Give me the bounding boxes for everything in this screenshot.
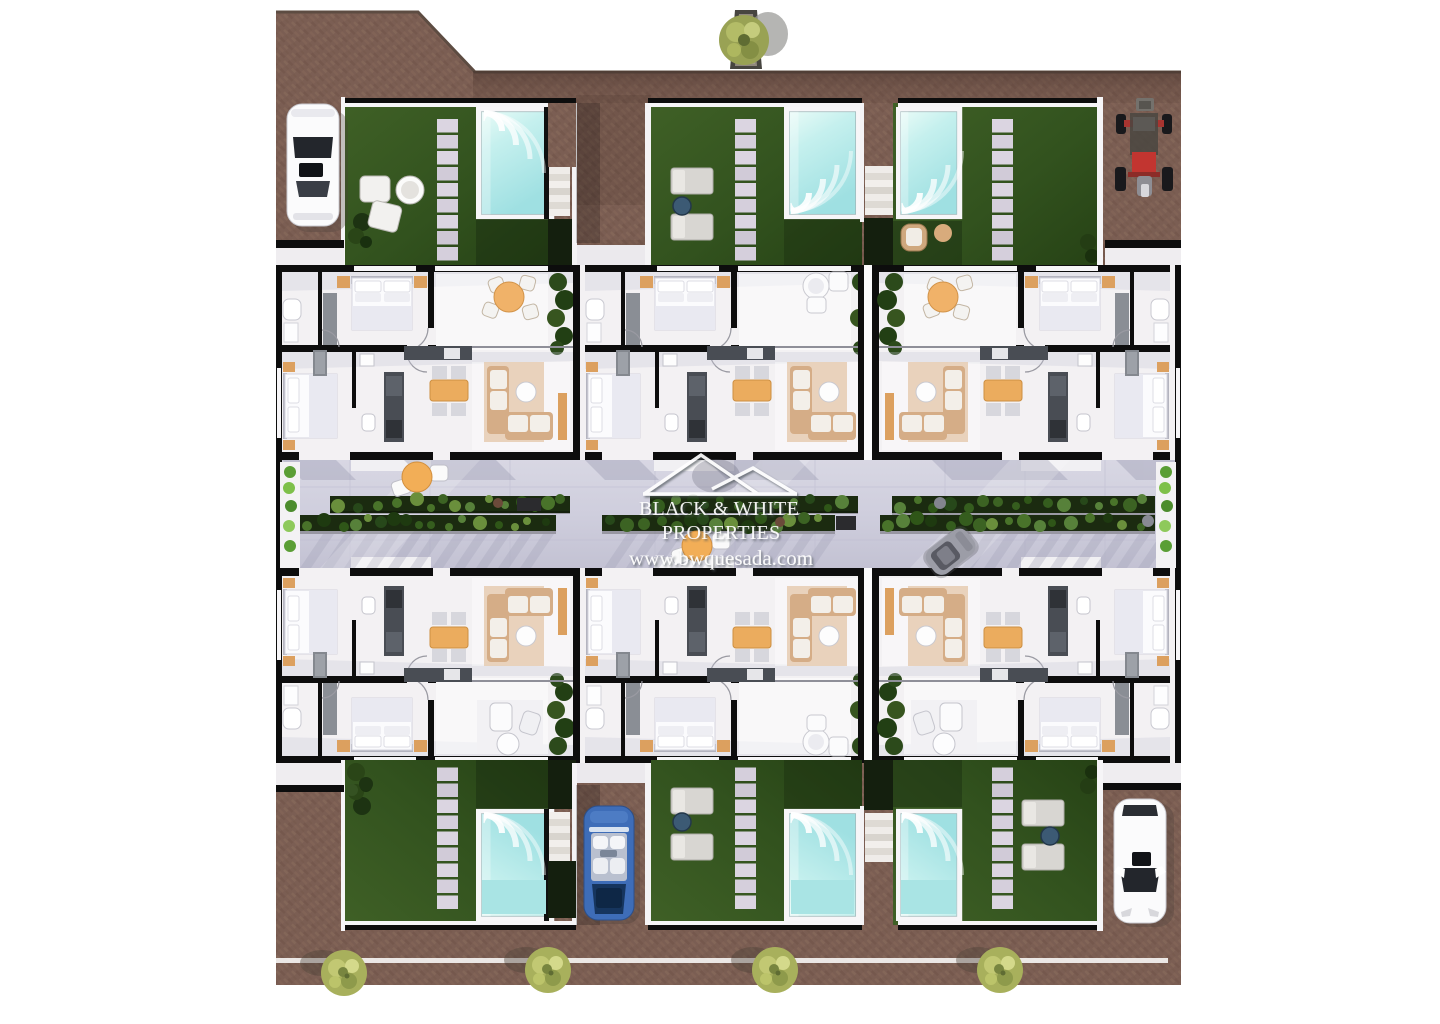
svg-text:PROPERTIES: PROPERTIES [662,522,781,544]
svg-text:www.bwquesada.com: www.bwquesada.com [629,546,813,570]
svg-text:BLACK & WHITE: BLACK & WHITE [639,498,799,520]
